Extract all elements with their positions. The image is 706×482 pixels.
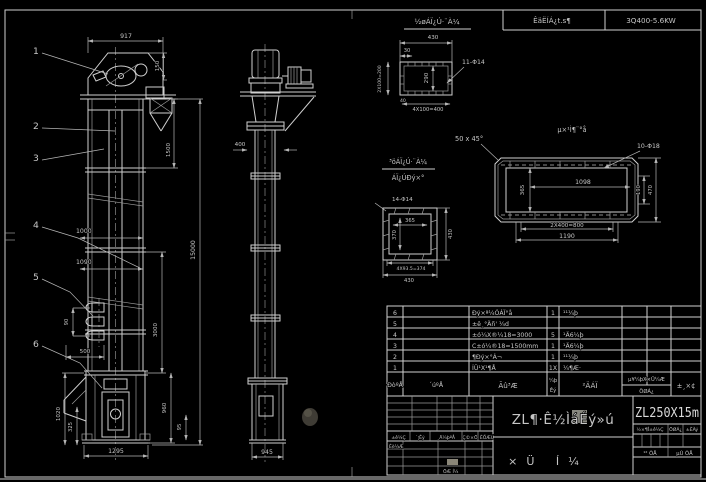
discharge-spout [146,87,164,98]
scale-header: ±ÈÀý [686,425,699,433]
dim-95: 95 [177,424,183,431]
detail-inlet-flange: ½øÁÏ¿Ú·¨À¼ 430 30 290 2X100=200 40 4X100… [377,17,485,113]
side-view: 400 945 [233,44,316,462]
sheets-label: ¹² ÕÅ [643,450,657,457]
bom-header-note: ±¸×¢ [677,382,696,390]
bom-header-weight-bottom: ÖØÁ¿ [639,388,654,395]
balloon-2: 2 [33,121,39,132]
bom-qty: 1 [551,310,555,317]
drive-sprocket [135,64,147,76]
dim-left-pitch: 2X100=200 [377,65,383,93]
dim-470: 470 [648,185,654,195]
dim-365-plate: 365 [520,184,526,195]
dim-90: 90 [64,319,70,326]
bom-qty: 5 [551,332,555,339]
dim-400: 400 [235,142,246,148]
bom-name: ±ê¸°Äñ' ¼d [472,319,509,328]
dim-370-sq: 370 [392,230,398,240]
base-foot [82,434,92,440]
bom-rows: 6 Ðý×ª¼ÓÁÏ°å 1 ¹¹¼þ 5 ±ê¸°Äñ' ¼d 4 ±ó¼X®… [393,308,584,372]
support-brace [285,97,314,131]
bom-no: 2 [393,354,397,361]
dim-30: 30 [404,48,411,54]
holes-note-11: 11-Φ14 [462,59,485,66]
detail-outlet-flange: ³öÁÏ¿Ú·¨À¼ ÁÏ¿ÚÐý×° 14-Φ14 365 370 430 4… [375,157,454,284]
bom-header-name: Ãû³Æ [498,381,517,390]
stage-header: ½×¶Î±ê¼Ç [637,426,664,433]
dim-bottom-pitch: 4X100=400 [412,107,443,113]
bom-no: 3 [393,343,397,350]
drawing-type: ×Ü Í¼ [508,455,588,468]
feed-hopper [64,377,86,400]
bom-material: ¹Ä6¼þ [563,341,584,350]
head-cap [252,50,279,78]
dim-430-bottom: 430 [404,278,414,284]
dim-1020: 1020 [56,406,62,421]
detail-fixing-plate: µ×¹Ì¶¨°å 50 x 45° 10-Φ18 365 1098 190 47… [455,125,661,243]
smudge-artifact [302,408,318,426]
throughput-field: ÊäËÍÁ¿t.s¶ [533,16,571,25]
boot-side [249,384,286,443]
bom-qty: 1 [551,354,555,361]
dim-1000: 1000 [76,228,92,235]
bom-qty: 1 [551,343,555,350]
head-hood [88,53,163,95]
dim-2x400: 2X400=800 [550,223,584,229]
dim-1295: 1295 [108,448,124,455]
dim-960: 960 [162,402,168,413]
cad-drawing-stage: ÊäËÍÁ¿t.s¶ 3Q400-5.6KW [0,0,706,482]
bom-material: ¹Ä6¼þ [563,330,584,339]
draw-label: ÖÆ Í¼ [443,468,459,475]
bom-material: ¼¶Æ· [563,365,581,372]
motor [282,67,313,88]
balloon-6: 6 [33,339,39,350]
dim-190: 190 [636,185,642,195]
balloon-1: 1 [33,46,39,57]
dim-3000: 3000 [153,322,159,337]
bom-header-weight-top: µ¥¼þX×Ü¼Æ [628,376,665,383]
power-field: 3Q400-5.6KW [626,16,676,25]
dim-bolt-pitch-sq: 4X93.5=374 [397,266,426,272]
dim-150: 150 [155,60,161,71]
bom-name: C±ó¼®18=1500mm [472,342,538,350]
dim-917: 917 [120,33,132,40]
dim-15000: 15000 [190,240,197,260]
bom-qty: 1X [549,365,558,372]
bom-table: 6 Ðý×ª¼ÓÁÏ°å 1 ¹¹¼þ 5 ±ê¸°Äñ' ¼d 4 ±ó¼X®… [387,306,701,475]
dim-1190: 1190 [559,233,575,240]
bom-name: Ðý×ª¼ÓÁÏ°å [472,308,512,317]
rev-header-sign: Ç©×Ö [462,434,478,441]
bom-name: ÍÜ¹X¹¶Å [472,363,496,372]
bom-header-no: ÐòºÅ [387,380,403,389]
rev-header-date: ÈÕÆÚ [480,433,494,441]
dim-325: 325 [68,422,74,432]
bom-header-qty1: ¼þ [549,378,558,384]
bom-material: ¹¹¼þ [563,354,578,361]
bom-name: ¶Ðý×°Á¬ [472,352,502,361]
stamp-mark [447,459,458,465]
holes-note-14: 14-Φ14 [392,197,413,203]
balloon-5: 5 [33,272,39,283]
product-title: ZL¶·Ê½ÌáÉý»ú [512,410,615,428]
detail-outlet-title1: ³öÁÏ¿Ú·¨À¼ [389,157,427,166]
design-label: Éè¼Æ [389,442,404,450]
dim-290: 290 [424,72,430,83]
bom-header-material: ²ÄÁÏ [582,381,598,390]
detail-outlet-title2: ÁÏ¿ÚÐý×° [392,173,425,182]
dim-945: 945 [261,449,273,456]
bom-header-code: ´úºÅ [429,380,444,389]
dim-40: 40 [400,98,406,104]
sheet-no-label: µÚ ÕÅ [676,450,693,457]
dim-1500: 1500 [166,142,172,157]
revision-grid: ±ê¼Ç ´¦Êý ¸Ä¼þºÅ Ç©×Ö ÈÕÆÚ Éè¼Æ ÖÆ Í¼ [387,396,494,475]
holes-note-10: 10-Φ18 [637,143,660,150]
header-strip: ÊäËÍÁ¿t.s¶ 3Q400-5.6KW [503,10,701,30]
bom-no: 6 [393,310,397,317]
front-view: 1 2 3 4 5 6 917 150 1500 3000 [33,33,203,461]
title-block: ±ê¼Ç ´¦Êý ¸Ä¼þºÅ Ç©×Ö ÈÕÆÚ Éè¼Æ ÖÆ Í¼ ZL… [387,396,701,475]
detail-plate-title: µ×¹Ì¶¨°å [557,125,586,134]
model-block: ZL250X15m ½×¶Î±ê¼Ç ÖØÁ¿ ±ÈÀý ¹² ÕÅ µÚ ÕÅ [633,406,701,457]
product-title-cell: ZL¶·Ê½ÌáÉý»ú ×Ü Í¼ [493,410,633,468]
rev-header-count: ´¦Êý [415,433,425,441]
balloon-3: 3 [33,153,39,164]
dim-500: 500 [80,349,91,355]
dim-365-sq: 365 [405,218,415,224]
rev-header-mark: ±ê¼Ç [391,434,405,441]
chamfer-note: 50 x 45° [455,135,483,143]
detail-inlet-title: ½øÁÏ¿Ú·¨À¼ [414,17,459,26]
dim-1098: 1098 [575,179,591,186]
bom-name: ±ó¼X®¼18=3000 [472,331,532,339]
model-number: ZL250X15m [635,406,699,421]
dim-1090: 1090 [76,259,92,266]
balloon-4: 4 [33,220,39,231]
pipe-flanges [248,173,287,384]
bom-no: 5 [393,321,397,328]
bucket-chain [86,298,104,347]
dim-430-top: 430 [428,35,439,41]
weight-header: ÖØÁ¿ [669,426,682,433]
sheet-border [0,10,706,479]
rev-header-file: ¸Ä¼þºÅ [437,434,456,441]
bom-no: 4 [393,332,397,339]
door-side [259,396,273,416]
bom-material: ¹¹¼þ [563,310,578,317]
bom-header-qty2: Êý [550,386,556,394]
drawing-canvas: ÊäËÍÁ¿t.s¶ 3Q400-5.6KW [0,0,706,482]
dim-430-right: 430 [448,229,454,239]
bom-no: 1 [393,365,397,372]
